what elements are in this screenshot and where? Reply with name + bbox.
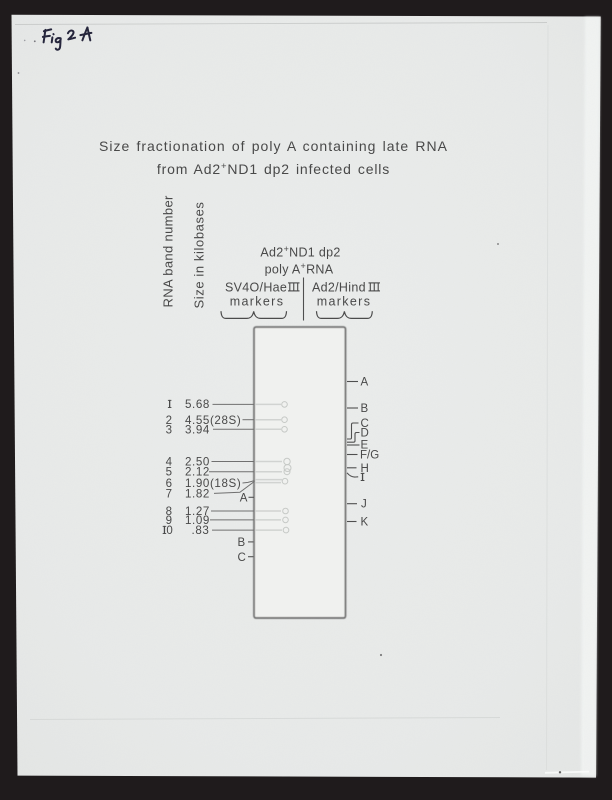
svg-text:J: J xyxy=(361,499,367,511)
svg-text:Size in kilobases: Size in kilobases xyxy=(192,201,207,308)
svg-text:1.82: 1.82 xyxy=(185,487,210,500)
svg-text:B: B xyxy=(238,537,246,549)
svg-text:C: C xyxy=(238,552,246,564)
svg-text:poly A+RNA: poly A+RNA xyxy=(265,261,334,277)
svg-text:SV4O/Hae: SV4O/Hae xyxy=(225,280,287,294)
svg-text:F/G: F/G xyxy=(360,450,379,462)
svg-text:B: B xyxy=(361,403,369,415)
svg-text:Ad2/Hind: Ad2/Hind xyxy=(312,280,366,294)
svg-text:A: A xyxy=(361,377,369,389)
svg-text:markers: markers xyxy=(230,295,285,309)
svg-text:7: 7 xyxy=(166,488,172,500)
svg-text:3: 3 xyxy=(166,424,172,436)
svg-text:A: A xyxy=(240,492,248,504)
svg-text:RNA band number: RNA band number xyxy=(161,195,176,308)
svg-text:Size fractionation of poly A c: Size fractionation of poly A containing … xyxy=(99,138,448,154)
svg-text:markers: markers xyxy=(317,295,372,309)
svg-text:3.94: 3.94 xyxy=(185,423,210,436)
svg-text:K: K xyxy=(361,517,369,529)
svg-text:Ad2+ND1 dp2: Ad2+ND1 dp2 xyxy=(260,244,340,260)
svg-text:0: 0 xyxy=(166,525,172,537)
svg-text:.83: .83 xyxy=(192,524,210,537)
svg-text:5.68: 5.68 xyxy=(185,398,210,411)
svg-text:D: D xyxy=(361,428,369,440)
svg-text:from Ad2+ND1 dp2 infected cell: from Ad2+ND1 dp2 infected cells xyxy=(157,161,390,177)
